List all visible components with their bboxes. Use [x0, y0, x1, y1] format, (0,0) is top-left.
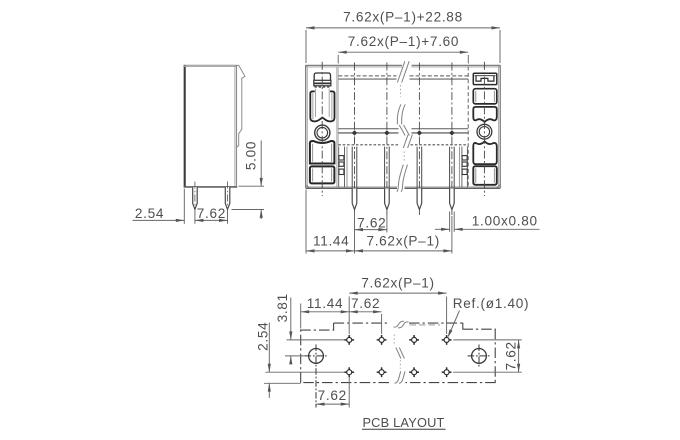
- svg-text:7.62: 7.62: [197, 206, 226, 221]
- svg-text:1.00x0.80: 1.00x0.80: [472, 214, 538, 229]
- svg-text:7.62x(P–1): 7.62x(P–1): [366, 233, 440, 248]
- svg-text:Ref.(ø1.40): Ref.(ø1.40): [453, 296, 529, 311]
- svg-text:7.62x(P–1)+7.60: 7.62x(P–1)+7.60: [348, 34, 459, 49]
- svg-text:5.00: 5.00: [244, 141, 259, 170]
- svg-text:2.54: 2.54: [135, 206, 164, 221]
- svg-text:7.62: 7.62: [318, 388, 347, 403]
- svg-text:11.44: 11.44: [313, 234, 350, 249]
- svg-text:7.62: 7.62: [351, 296, 380, 311]
- svg-text:11.44: 11.44: [307, 296, 344, 311]
- svg-text:7.62x(P–1): 7.62x(P–1): [361, 276, 435, 291]
- svg-text:2.54: 2.54: [255, 322, 270, 351]
- svg-text:7.62: 7.62: [504, 341, 519, 370]
- svg-text:7.62: 7.62: [357, 215, 386, 230]
- svg-text:PCB LAYOUT: PCB LAYOUT: [362, 415, 444, 430]
- svg-text:7.62x(P–1)+22.88: 7.62x(P–1)+22.88: [343, 10, 463, 25]
- svg-text:3.81: 3.81: [275, 293, 290, 322]
